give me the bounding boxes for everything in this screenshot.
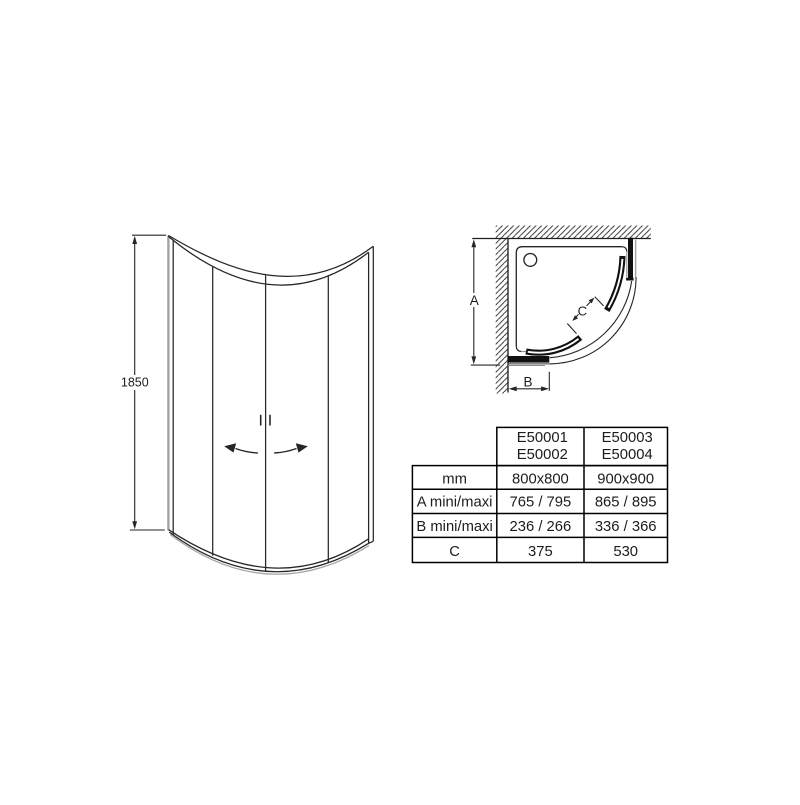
svg-text:A mini/maxi: A mini/maxi <box>417 495 493 511</box>
svg-text:E50002: E50002 <box>517 447 568 463</box>
svg-text:865 / 895: 865 / 895 <box>595 495 657 511</box>
svg-text:530: 530 <box>613 544 638 560</box>
svg-text:A: A <box>470 293 479 308</box>
svg-text:C: C <box>578 304 587 319</box>
svg-text:B: B <box>523 374 532 389</box>
svg-text:E50004: E50004 <box>602 447 653 463</box>
svg-text:336 / 366: 336 / 366 <box>595 519 657 535</box>
svg-text:E50001: E50001 <box>517 430 568 446</box>
svg-text:1850: 1850 <box>121 376 149 390</box>
svg-text:765 / 795: 765 / 795 <box>510 495 572 511</box>
svg-text:800x800: 800x800 <box>512 472 569 488</box>
svg-text:C: C <box>449 544 460 560</box>
svg-text:236 / 266: 236 / 266 <box>510 519 572 535</box>
svg-text:B mini/maxi: B mini/maxi <box>416 519 492 535</box>
svg-text:900x900: 900x900 <box>597 472 654 488</box>
svg-text:375: 375 <box>528 544 553 560</box>
svg-text:mm: mm <box>442 472 467 488</box>
svg-text:E50003: E50003 <box>602 430 653 446</box>
